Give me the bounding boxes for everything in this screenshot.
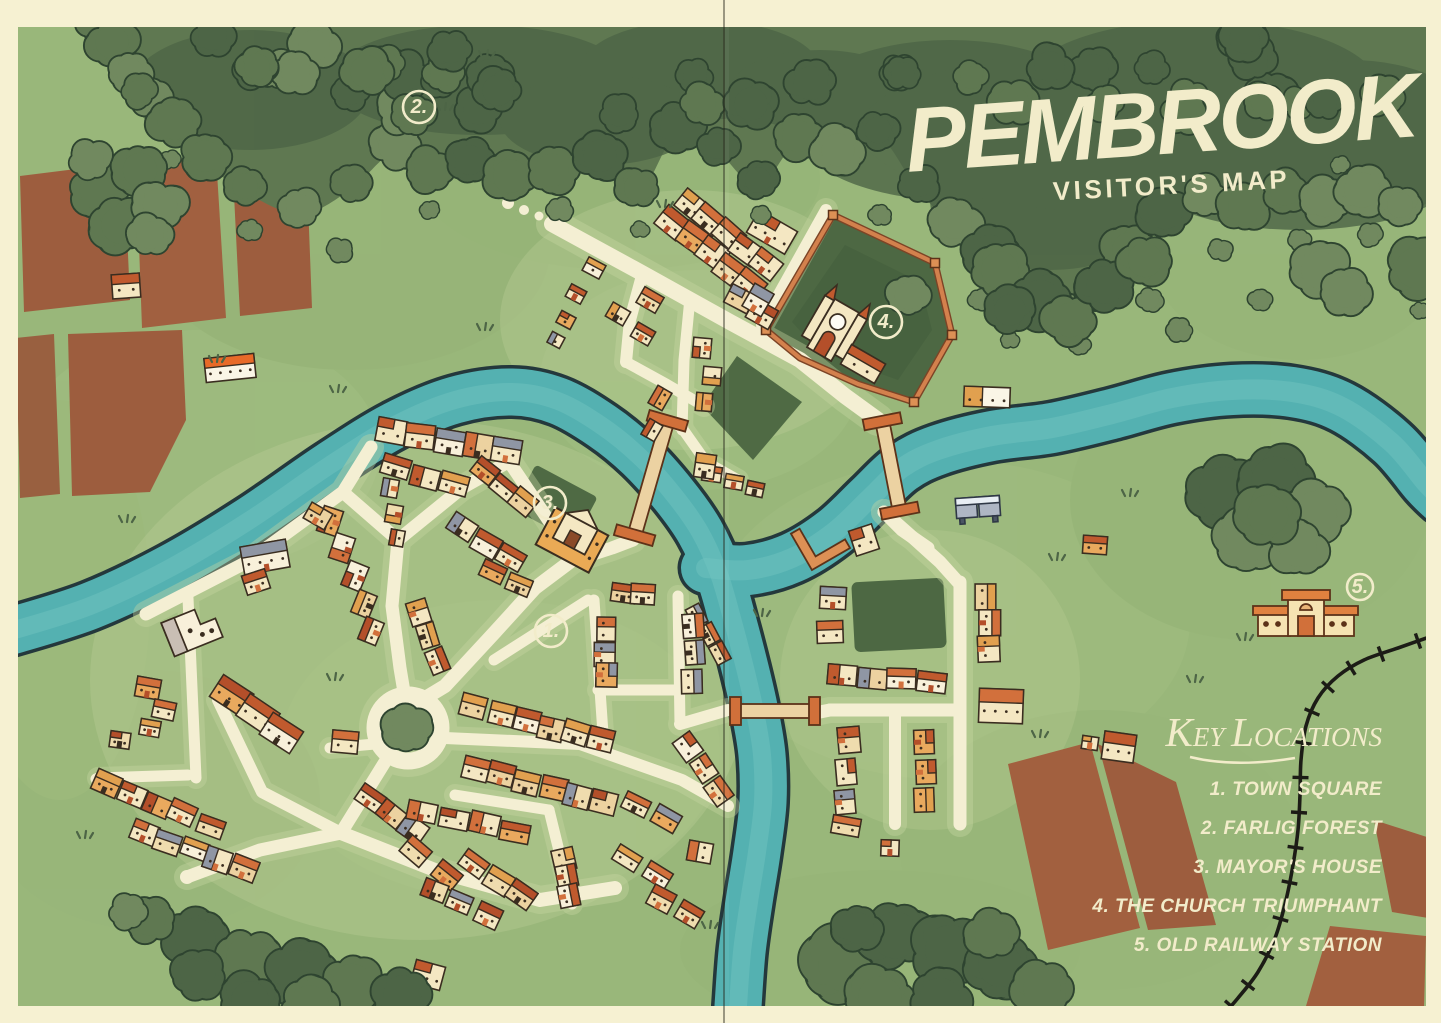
svg-text:2. FARLIG FOREST: 2. FARLIG FOREST bbox=[1200, 818, 1383, 839]
svg-text:4.: 4. bbox=[877, 311, 895, 333]
svg-text:1.: 1. bbox=[543, 620, 560, 642]
svg-text:3. MAYOR'S HOUSE: 3. MAYOR'S HOUSE bbox=[1194, 857, 1383, 878]
svg-text:5.: 5. bbox=[1352, 576, 1369, 598]
svg-text:2.: 2. bbox=[410, 96, 428, 118]
svg-text:1. TOWN SQUARE: 1. TOWN SQUARE bbox=[1210, 779, 1383, 800]
svg-text:5. OLD RAILWAY STATION: 5. OLD RAILWAY STATION bbox=[1134, 935, 1383, 956]
svg-text:4. THE CHURCH TRIUMPHANT: 4. THE CHURCH TRIUMPHANT bbox=[1091, 896, 1383, 917]
svg-text:3.: 3. bbox=[542, 492, 559, 514]
